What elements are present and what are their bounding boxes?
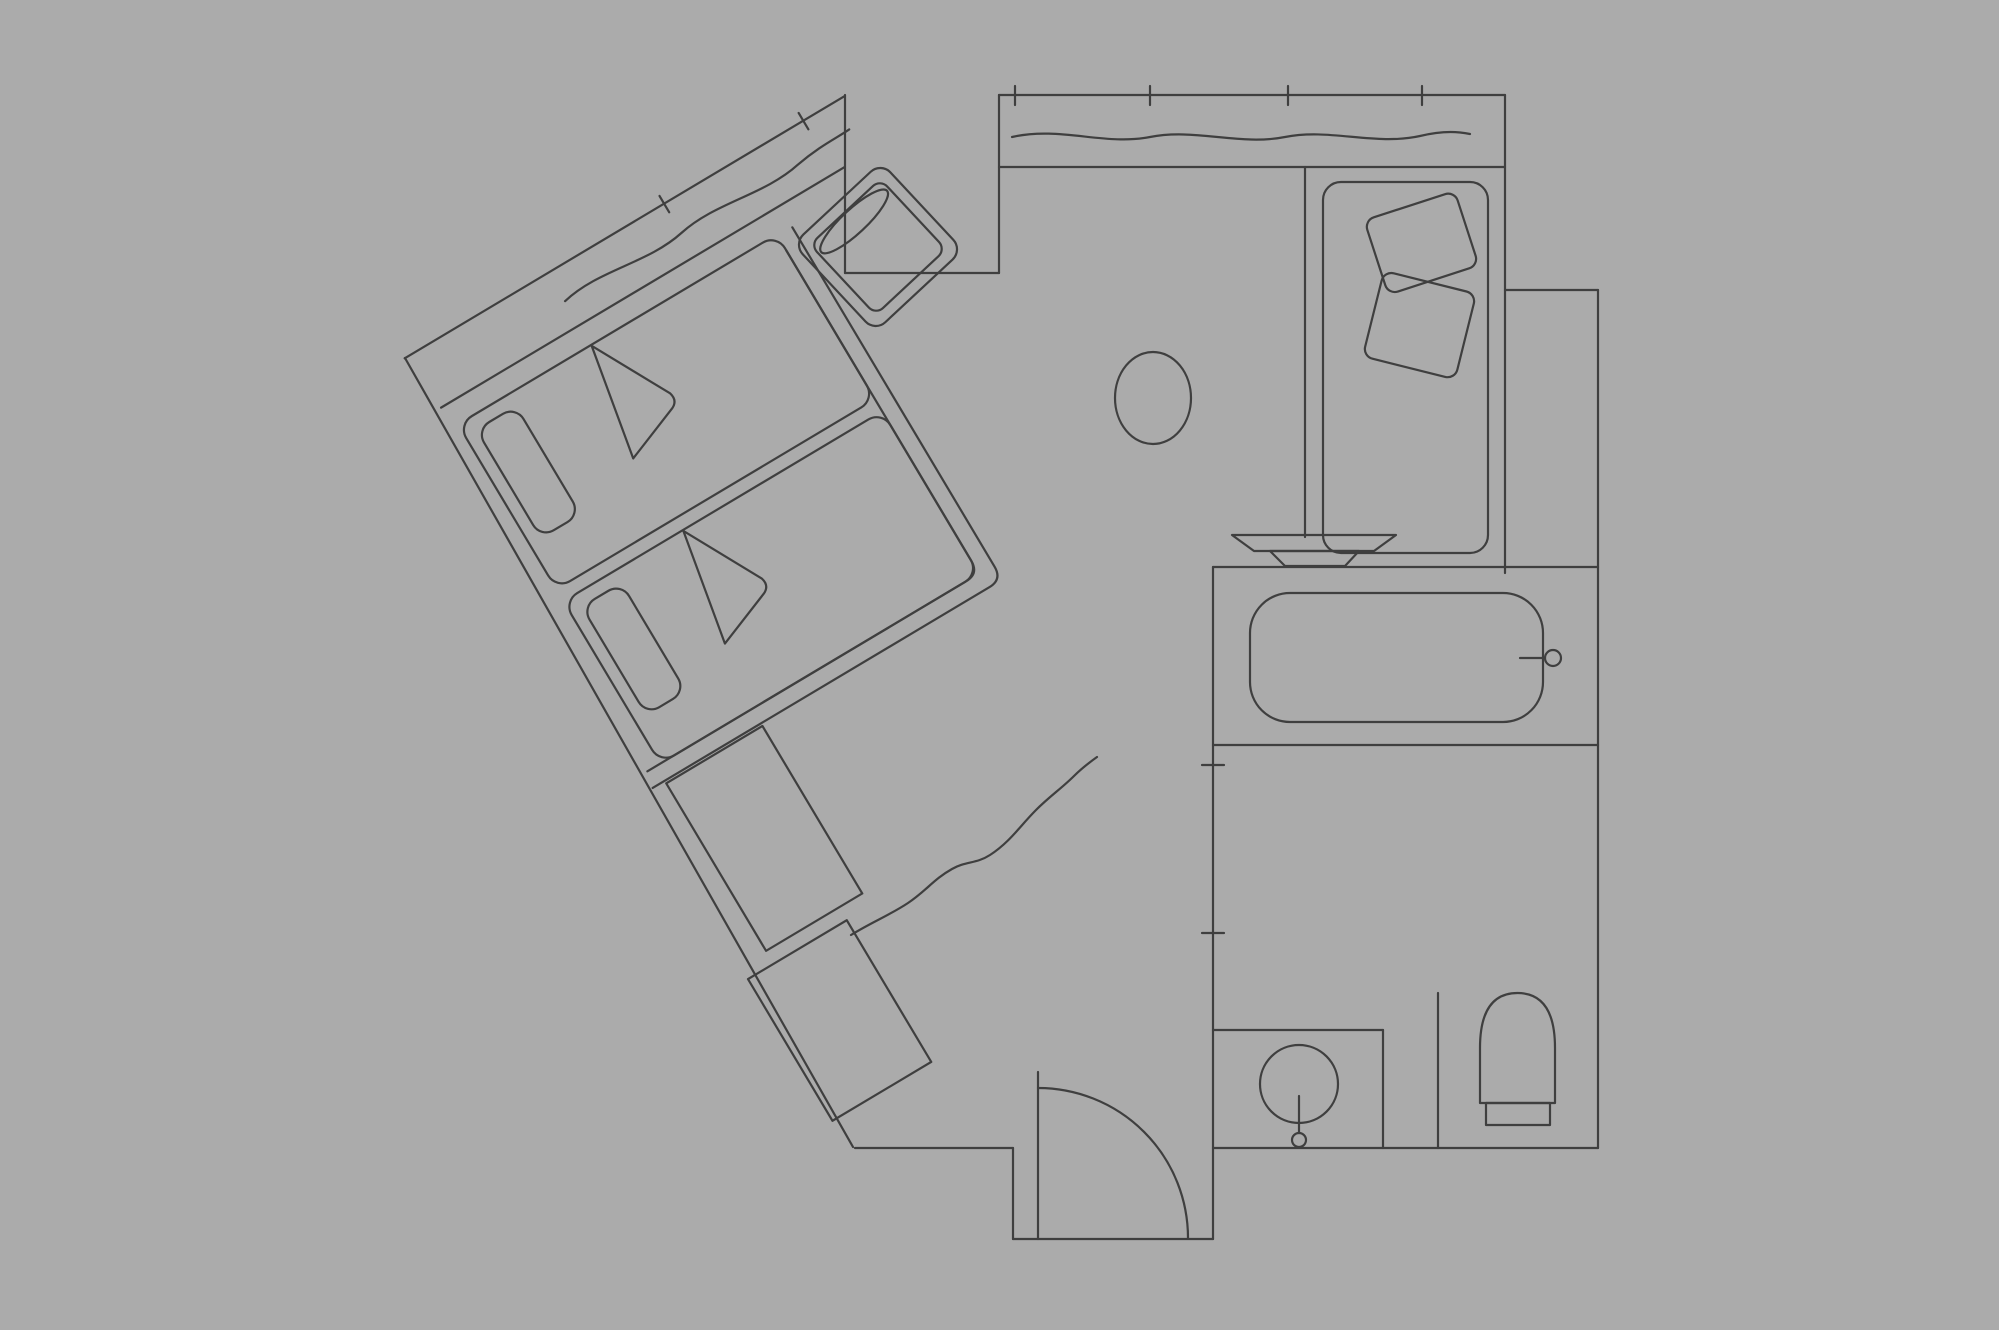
floor-plan-page bbox=[0, 0, 1999, 1330]
floor-plan-drawing bbox=[0, 0, 1999, 1330]
